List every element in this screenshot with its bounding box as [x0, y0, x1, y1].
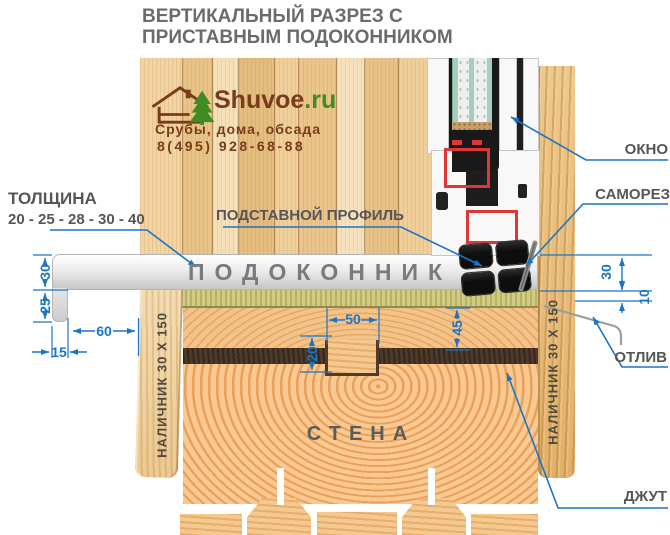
label-casing-left: НАЛИЧНИК 30 Х 150 — [155, 312, 170, 458]
label-wall: СТЕНА — [281, 423, 441, 446]
dim-lip: 15 — [51, 344, 67, 360]
logo-wordmark: Shuvoe.ru — [214, 86, 336, 115]
label-windowsill: ПОДОКОННИК — [130, 259, 510, 286]
dim-beam-height: 45 — [449, 320, 465, 336]
dim-drip-offset: 10 — [636, 289, 652, 305]
dim-overhang: 60 — [96, 323, 112, 339]
label-drip: ОТЛИВ — [614, 349, 667, 366]
house-tree-icon — [149, 83, 217, 125]
logo-brand: Shuvoe — [214, 86, 304, 114]
logo-phone: 8(495) 928-68-88 — [157, 138, 305, 154]
label-thickness-title: ТОЛЩИНА — [8, 189, 97, 209]
diagram-canvas: ВЕРТИКАЛЬНЫЙ РАЗРЕЗ С ПРИСТАВНЫМ ПОДОКОН… — [0, 0, 670, 535]
screw — [521, 243, 535, 289]
label-thickness-values: 20 - 25 - 28 - 30 - 40 — [8, 211, 145, 228]
label-screw: САМОРЕЗ — [595, 186, 670, 203]
logo-tld: .ru — [304, 86, 336, 114]
logo-tagline: Срубы, дома, обсада — [155, 121, 321, 137]
label-jute: ДЖУТ — [624, 488, 667, 505]
dim-tenon-width: 50 — [345, 311, 361, 327]
label-casing-right: НАЛИЧНИК 30 Х 150 — [546, 299, 561, 445]
dim-tenon-depth: 20 — [304, 346, 320, 362]
label-window: ОКНО — [625, 141, 668, 158]
leader-screw — [526, 204, 668, 266]
dim-sill-thickness: 30 — [37, 264, 53, 280]
label-support-profile: ПОДСТАВНОЙ ПРОФИЛЬ — [216, 207, 404, 224]
dim-right-height: 30 — [598, 264, 614, 280]
dim-front-drop: 25 — [37, 298, 53, 314]
